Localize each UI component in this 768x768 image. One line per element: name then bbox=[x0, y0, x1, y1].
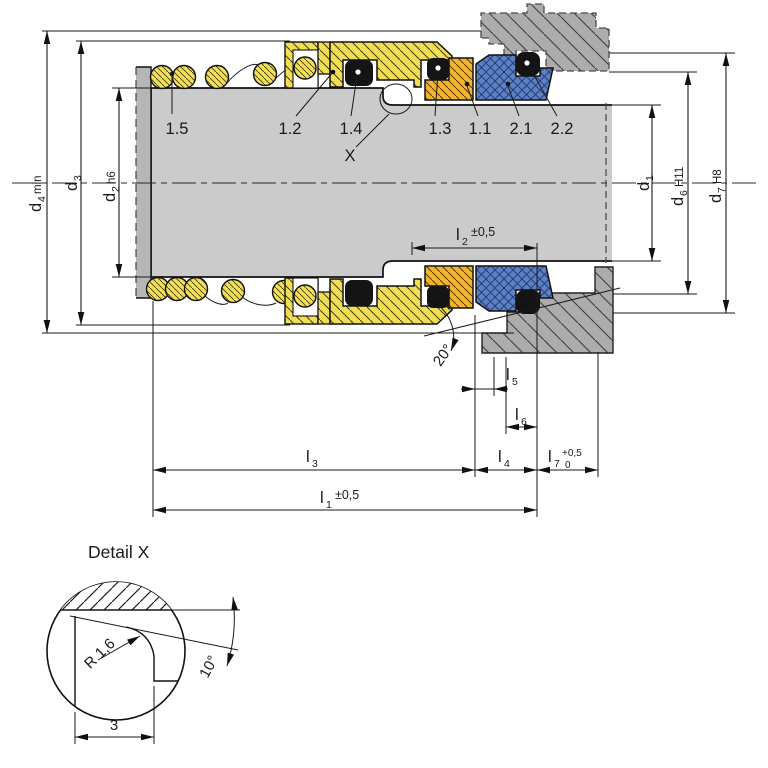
dim-tol-lower: 0 bbox=[565, 460, 571, 471]
detail-angle-arc bbox=[227, 597, 234, 666]
dim-sub: 3 bbox=[72, 175, 84, 181]
part-label-1-3: 1.3 bbox=[429, 120, 452, 138]
label-l1: l 1 ±0,5 bbox=[320, 488, 359, 511]
spring-coil bbox=[151, 66, 174, 89]
dim-sub: 3 bbox=[312, 458, 318, 470]
dim-tol: H11 bbox=[674, 167, 686, 187]
label-l5: l 5 bbox=[506, 366, 518, 388]
spring-coil bbox=[173, 66, 196, 89]
dim-tol: H8 bbox=[712, 169, 724, 184]
dim-label: d bbox=[27, 203, 45, 212]
part-label-1-2: 1.2 bbox=[279, 120, 302, 138]
leader-dot bbox=[355, 69, 360, 74]
part-label-1-4: 1.4 bbox=[340, 120, 363, 138]
spring-coil bbox=[222, 280, 245, 303]
dim-sub: 4 bbox=[504, 458, 510, 470]
dim-sub: 1 bbox=[326, 499, 332, 511]
spring-coil bbox=[254, 63, 277, 86]
dim-label: l bbox=[506, 366, 510, 384]
label-d4: d 4 min bbox=[27, 175, 48, 212]
seat-top bbox=[476, 55, 553, 100]
leader-dot bbox=[506, 82, 511, 87]
mechanical-seal-cross-section: d 4 min d 3 d 2 h6 d 1 d 6 H11 d 7 H8 l bbox=[0, 0, 768, 768]
part-label-1-5: 1.5 bbox=[166, 120, 189, 138]
dim-tol: ±0,5 bbox=[471, 225, 495, 239]
dim-label: l bbox=[515, 406, 519, 424]
label-l3: l 3 bbox=[306, 448, 318, 470]
label-d1: d 1 bbox=[635, 175, 656, 191]
dim-label: d bbox=[63, 182, 81, 191]
dim-sub: 7 bbox=[554, 458, 560, 470]
dim-label: d bbox=[669, 197, 687, 206]
dim-label: l bbox=[548, 448, 552, 466]
seal-drawing-page: d 4 min d 3 d 2 h6 d 1 d 6 H11 d 7 H8 l bbox=[0, 0, 768, 768]
part-label-2-2: 2.2 bbox=[551, 120, 574, 138]
detail-x-view: Detail X 10° R 1,6 3 bbox=[47, 542, 240, 744]
dim-sub: 4 bbox=[36, 196, 48, 202]
label-l7: l 7 +0,5 0 bbox=[548, 448, 582, 471]
dim-tol: min bbox=[32, 175, 44, 194]
leader-dot bbox=[170, 72, 175, 77]
detail-seal-section bbox=[47, 580, 187, 610]
retainer-strip bbox=[318, 42, 330, 74]
label-l6: l 6 bbox=[515, 406, 527, 428]
leader-dot bbox=[465, 82, 470, 87]
dim-sub: 1 bbox=[644, 175, 656, 181]
dim-label: l bbox=[456, 226, 460, 244]
part-label-2-1: 2.1 bbox=[510, 120, 533, 138]
dim-tol-upper: +0,5 bbox=[562, 448, 582, 459]
detail-title: Detail X bbox=[88, 542, 150, 562]
oring-1-4-bottom bbox=[345, 280, 373, 306]
leader-dot bbox=[524, 60, 529, 65]
dim-label: l bbox=[306, 448, 310, 466]
label-d7: d 7 H8 bbox=[707, 169, 728, 203]
detail-x-ref-label: X bbox=[344, 147, 355, 165]
dim-sub: 6 bbox=[678, 190, 690, 196]
label-l4: l 4 bbox=[498, 448, 510, 470]
label-d3: d 3 bbox=[63, 175, 84, 191]
dim-label: d bbox=[635, 182, 653, 191]
dim-label: l bbox=[498, 448, 502, 466]
dim-sub: 7 bbox=[716, 187, 728, 193]
label-d6: d 6 H11 bbox=[669, 167, 690, 206]
spring-coil bbox=[185, 278, 208, 301]
leader-dot bbox=[435, 65, 440, 70]
dim-sub: 2 bbox=[462, 236, 468, 248]
undercut-angle-label: 10° bbox=[196, 653, 222, 681]
part-label-1-1: 1.1 bbox=[469, 120, 492, 138]
spring-coil bbox=[294, 285, 316, 307]
dim-label: d bbox=[707, 194, 725, 203]
dim-sub: 2 bbox=[110, 186, 122, 192]
spring-wire bbox=[242, 297, 276, 305]
dim-sub: 5 bbox=[512, 376, 518, 388]
spring-coil bbox=[294, 57, 316, 79]
dim-label: d bbox=[101, 193, 119, 202]
spring-coil bbox=[206, 66, 229, 89]
dim-label: l bbox=[320, 489, 324, 507]
dim-tol: ±0,5 bbox=[335, 488, 359, 502]
dim-tol: h6 bbox=[106, 171, 118, 184]
groove-width-label: 3 bbox=[110, 717, 118, 734]
spring-bottom bbox=[147, 278, 296, 306]
retainer-strip bbox=[318, 292, 330, 324]
dim-sub: 6 bbox=[521, 416, 527, 428]
